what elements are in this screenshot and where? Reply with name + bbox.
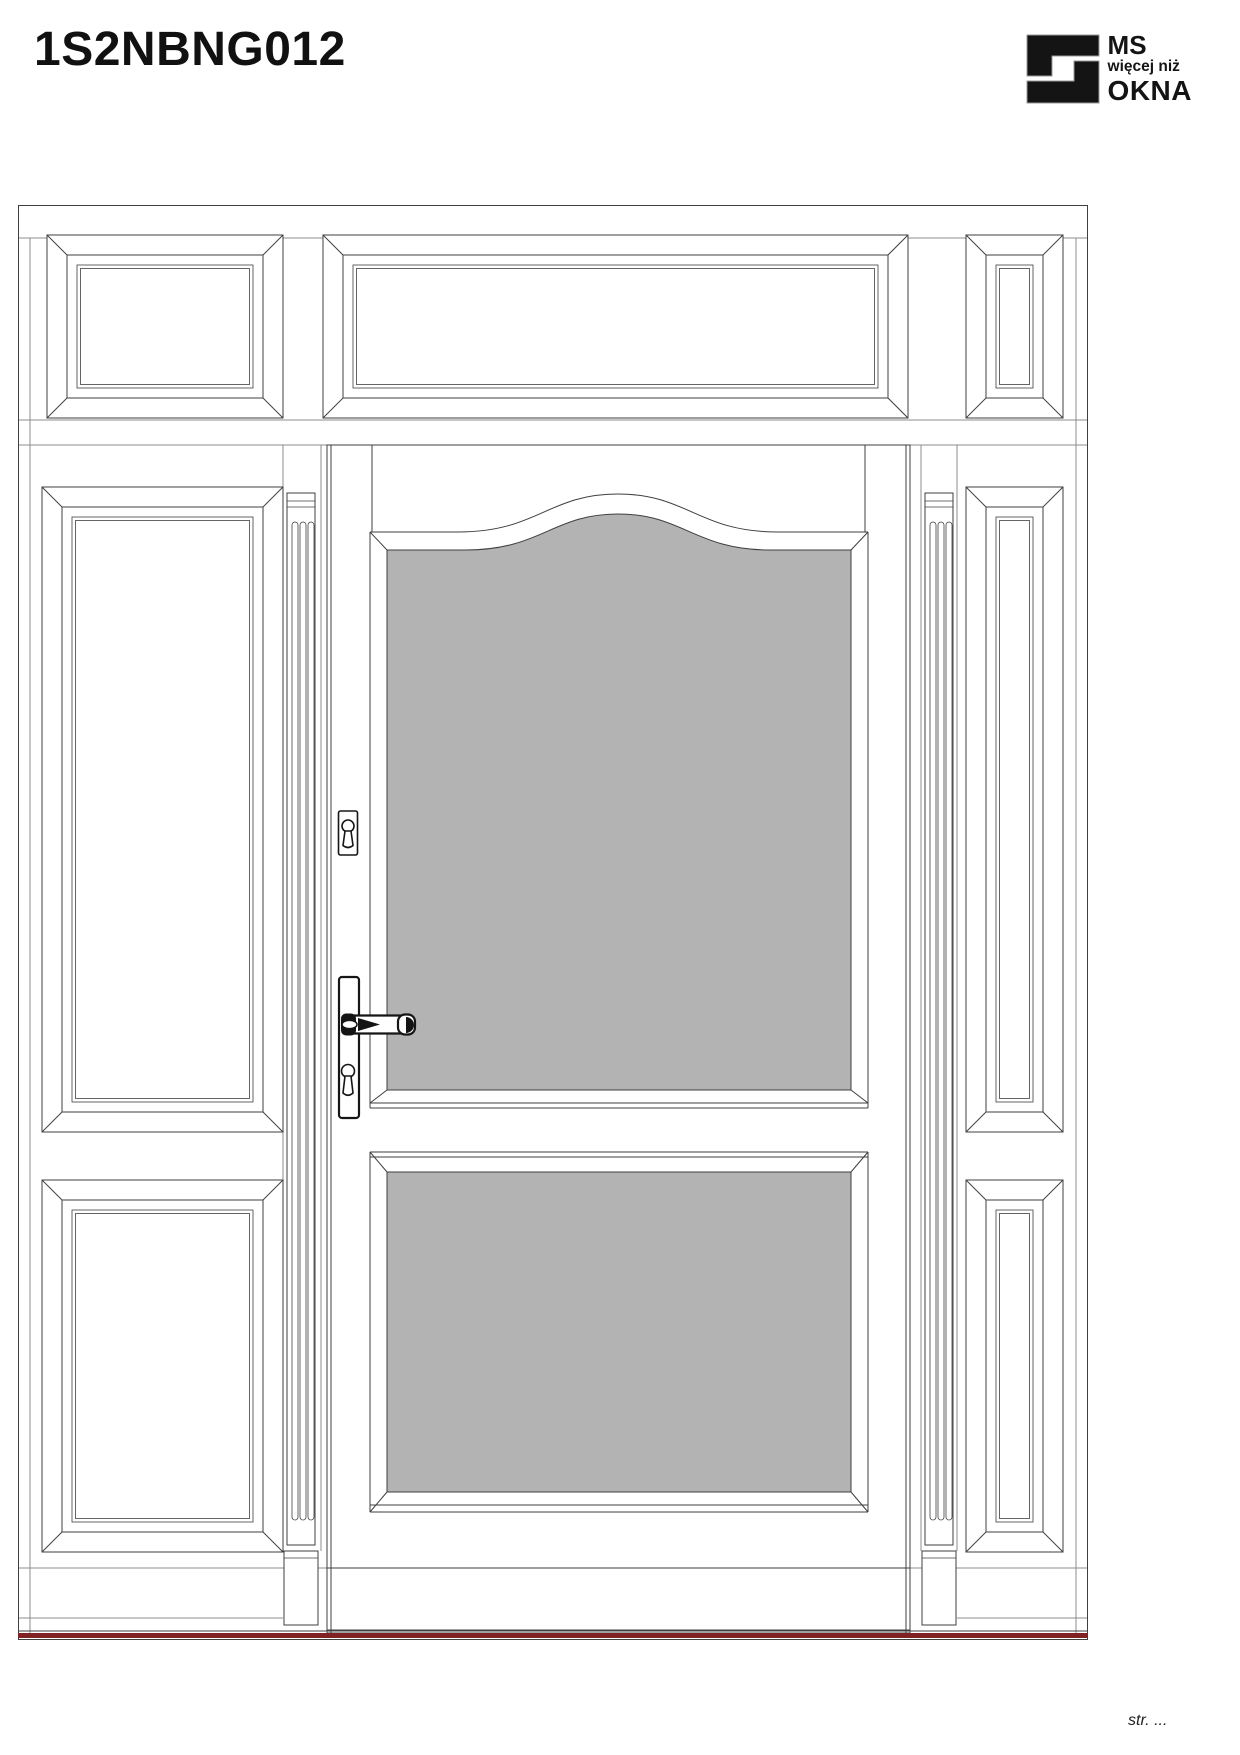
sidelight-left-lower-panel [42,1180,283,1552]
brand-logo-icon [1026,34,1100,104]
door-leaf [327,445,910,1633]
sidelight-right-upper-panel [966,487,1063,1132]
fluted-column-right [922,493,956,1625]
page-title: 1S2NBNG012 [34,22,346,77]
logo-line3: OKNA [1108,76,1192,105]
sidelight-right-lower-panel [966,1180,1063,1552]
sidelight-left-upper-panel [42,487,283,1132]
transom-panel-left [47,235,283,418]
transom-panel-right [966,235,1063,418]
logo-line2: więcej niż [1108,58,1192,76]
brand-logo-text: MS więcej niż OKNA [1108,32,1192,105]
fluted-column-left [284,493,318,1625]
logo-line1: MS [1108,32,1192,58]
transom-panel-center [323,235,908,418]
brand-logo: MS więcej niż OKNA [1026,34,1192,105]
page-number: str. ... [1128,1712,1167,1730]
catalog-page: 1S2NBNG012 MS więcej niż OKNA [0,0,1240,1755]
door-lower-glass-panel [370,1152,868,1512]
door-upper-glass-panel [370,494,868,1108]
door-technical-drawing [18,205,1088,1640]
keyhole-escutcheon-upper [339,811,358,855]
